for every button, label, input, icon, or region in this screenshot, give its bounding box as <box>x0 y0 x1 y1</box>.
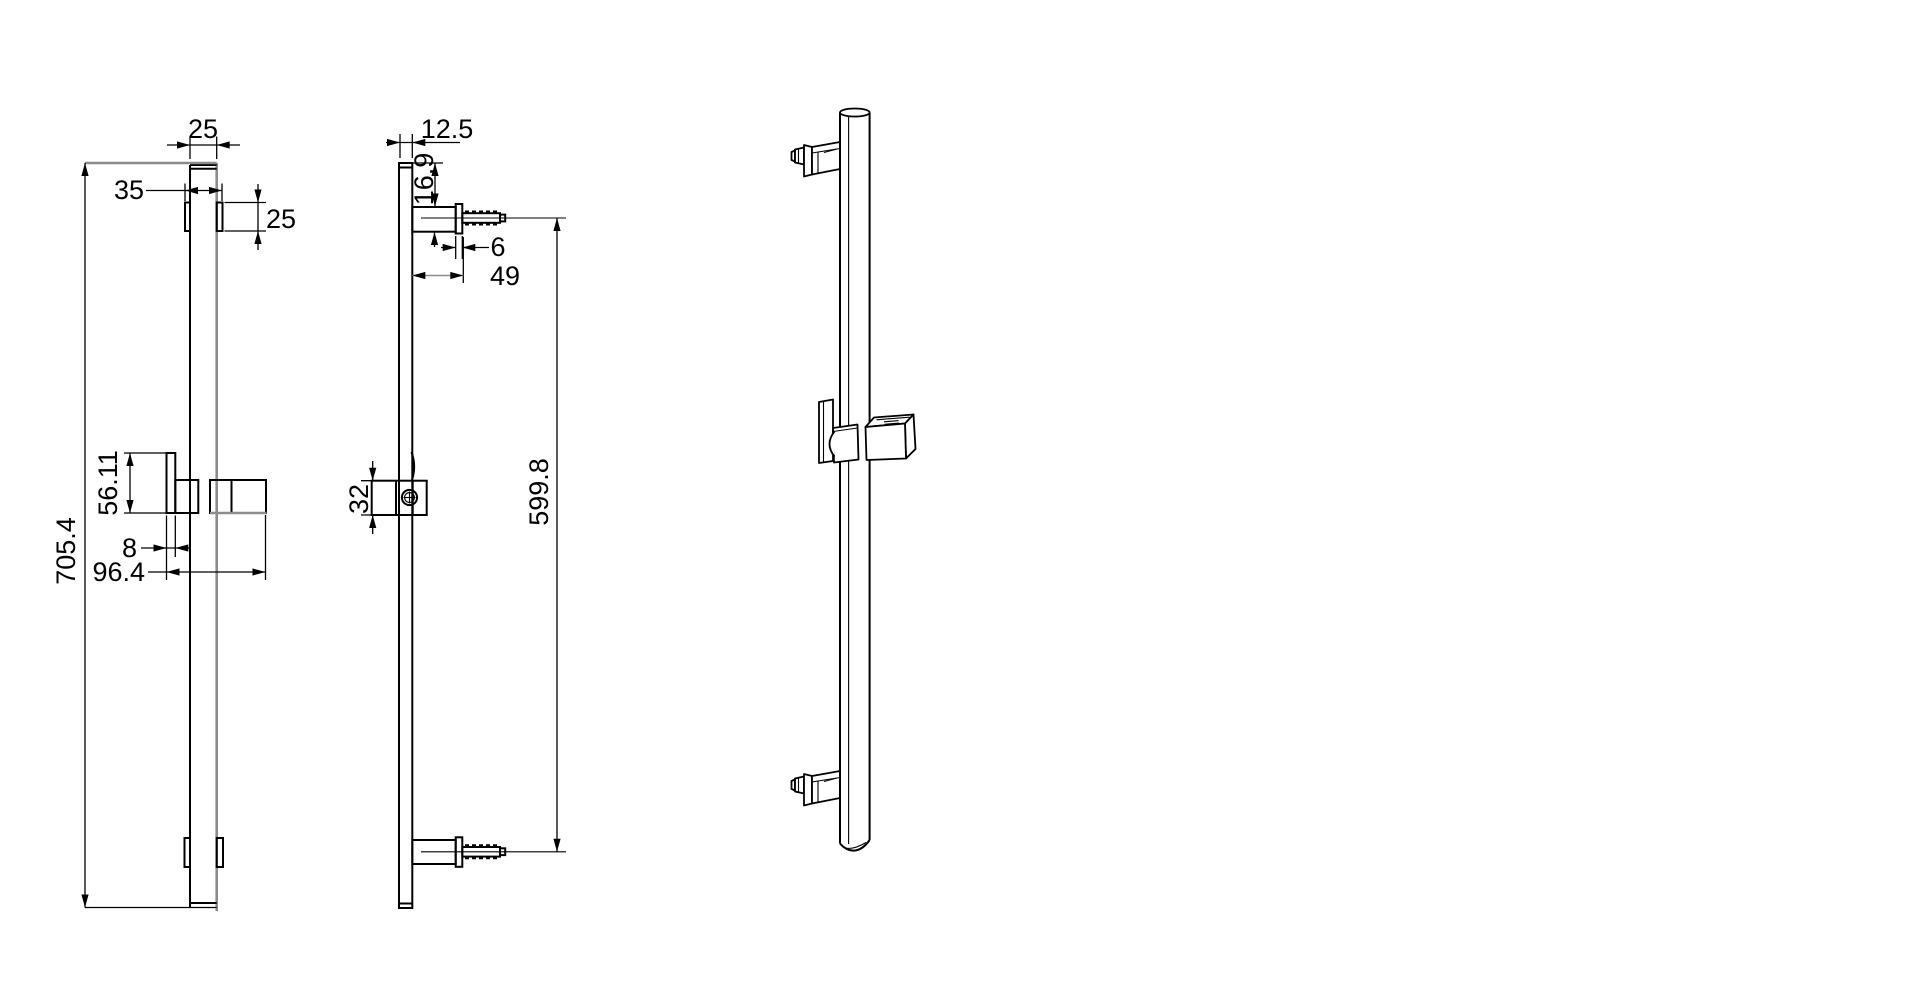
iso-holder <box>866 415 916 461</box>
dim-side-top-offset: 16.9 <box>409 153 443 207</box>
dim-side-bar-depth: 12.5 <box>386 114 473 158</box>
front-slider-clamp <box>175 480 198 513</box>
dim-label: 49 <box>490 261 520 291</box>
arrowhead <box>126 453 133 466</box>
arrowhead <box>81 163 88 176</box>
arrowhead <box>167 568 180 575</box>
arrowhead <box>185 187 198 194</box>
bar-top-cap <box>840 109 870 117</box>
slider-plate <box>819 400 833 464</box>
arrowhead <box>387 139 400 146</box>
dim-label: 6 <box>490 232 505 262</box>
arrowhead <box>553 839 560 852</box>
dim-label: 12.5 <box>421 114 474 144</box>
arrowhead <box>462 244 475 251</box>
dim-front-bracket-width: 35 <box>114 175 222 205</box>
technical-drawing: 25 35 25 56.11 <box>0 0 1920 995</box>
dim-label: 32 <box>344 484 374 514</box>
dim-label: 96.4 <box>92 557 145 587</box>
dim-label: 599.8 <box>524 458 554 526</box>
arrowhead <box>553 218 560 231</box>
bracket-screw-knob <box>795 777 804 794</box>
arrowhead <box>254 190 261 203</box>
dim-side-slider-height: 32 <box>344 461 379 534</box>
front-bottom-bracket-right-tab <box>217 838 223 867</box>
dim-label: 705.4 <box>51 517 81 585</box>
arrowhead <box>450 272 463 279</box>
front-view: 25 35 25 56.11 <box>51 114 296 911</box>
bar-bottom-cap <box>840 840 870 851</box>
front-top-bracket-right-tab <box>217 203 223 232</box>
iso-bar <box>840 109 870 851</box>
bracket-screw-knob <box>795 148 804 165</box>
side-bar <box>399 163 412 908</box>
arrowhead <box>369 515 376 528</box>
dim-side-mount-centers: 599.8 <box>524 218 561 852</box>
front-top-bracket-left-tab <box>185 203 190 232</box>
front-bottom-bracket-left-tab <box>185 838 191 867</box>
dim-front-slider-height: 56.11 <box>93 450 173 516</box>
arrowhead <box>254 231 261 244</box>
iso-slider <box>819 400 859 464</box>
dim-label: 16.9 <box>409 153 439 206</box>
arrowhead <box>154 544 167 551</box>
bracket-wall-plate <box>804 774 812 806</box>
arrowhead <box>443 244 456 251</box>
dim-label: 25 <box>266 204 296 234</box>
arrowhead <box>217 141 230 148</box>
dim-front-bracket-height: 25 <box>225 184 297 250</box>
front-slider-plate <box>167 453 176 513</box>
bracket-wall-plate <box>804 145 812 177</box>
front-handset-holder <box>210 480 266 513</box>
iso-top-bracket <box>792 142 841 177</box>
iso-bottom-bracket <box>792 771 841 806</box>
dim-label: 56.11 <box>93 450 123 516</box>
holder-front-face <box>866 424 907 461</box>
dim-side-arm-bottom-arrow <box>431 232 438 247</box>
dim-front-holder-reach: 96.4 <box>92 515 265 587</box>
arrowhead <box>175 544 188 551</box>
bracket-arm <box>812 771 840 804</box>
dim-front-plate-thickness: 8 <box>122 516 190 564</box>
arrowhead <box>412 272 425 279</box>
arrowhead <box>253 568 266 575</box>
arrowhead <box>431 232 438 245</box>
dim-label: 35 <box>114 175 144 205</box>
side-view: 12.5 16.9 6 <box>344 114 566 908</box>
side-top-arm <box>412 207 455 232</box>
arrowhead <box>81 895 88 908</box>
bracket-arm <box>812 142 840 175</box>
iso-view <box>792 109 916 851</box>
dim-label: 25 <box>188 114 218 144</box>
arrowhead <box>369 468 376 481</box>
dim-front-bar-width: 25 <box>167 114 240 159</box>
dim-side-flange-thickness: 6 <box>441 232 506 262</box>
arrowhead <box>126 500 133 513</box>
